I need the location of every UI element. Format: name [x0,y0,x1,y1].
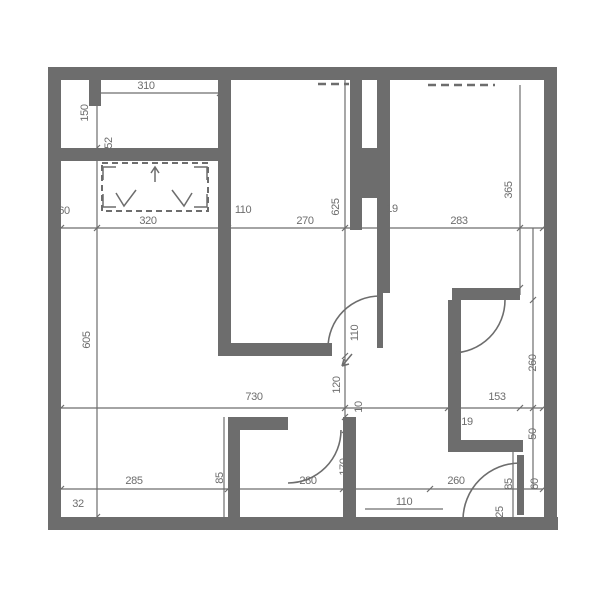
dimension-label: 110 [349,325,361,342]
dimension-label: 110 [235,204,252,216]
wall [228,417,240,517]
wall [61,148,220,161]
plan-symbol-line [194,194,207,207]
dimension-label: 280 [299,475,316,487]
wall [218,80,231,356]
wall [362,148,380,198]
dimension-label: 110 [396,496,413,508]
wall [48,517,558,530]
wall [48,67,557,80]
door-swing-arc [463,463,520,520]
dimension-label: 19 [461,416,473,428]
dimension-label: 730 [245,391,262,403]
dimension-label: 605 [81,331,93,348]
plan-symbol-line [342,354,352,366]
dimension-label: 19 [386,203,398,215]
wall [544,67,557,530]
dimension-label: 25 [494,506,506,518]
wall [448,300,461,452]
dimension-label: 50 [527,428,539,440]
dimension-label: 50 [342,500,354,512]
floor-plan-canvas: 3101505260320110270625192833656051101207… [0,0,600,600]
wall [377,293,383,348]
dimension-label: 260 [527,354,539,371]
plan-symbol-line [116,190,136,206]
wall [48,67,61,530]
floor-plan: 3101505260320110270625192833656051101207… [0,0,600,600]
dimension-label: 52 [103,137,115,149]
wall [225,343,332,356]
dimension-label: 283 [450,215,467,227]
wall [517,455,524,515]
wall [350,80,362,230]
dimension-label: 260 [447,475,464,487]
dimension-label: 150 [79,104,91,121]
dimension-label: 85 [214,472,226,484]
dimension-label: 365 [503,181,515,198]
wall [452,288,520,300]
dimension-label: 320 [139,215,156,227]
wall [448,440,523,452]
dimension-label: 120 [331,376,343,393]
dimension-label: 270 [296,215,313,227]
dimension-label: 60 [58,205,70,217]
plan-symbol-line [103,167,116,180]
plan-symbol-line [151,167,159,182]
dimension-label: 85 [503,478,515,490]
plan-symbol-line [172,190,192,206]
wall [89,78,101,106]
dimension-label: 625 [330,198,342,215]
plan-symbol-line [103,194,116,207]
dimension-label: 10 [353,401,365,413]
wall [240,417,288,430]
dimension-label: 170 [338,458,350,475]
dimension-label: 32 [72,498,84,510]
dimension-label: 310 [137,80,154,92]
plan-symbol-line [194,167,207,180]
dimension-label: 285 [125,475,142,487]
dimension-label: 153 [488,391,505,403]
dimension-label: 60 [529,478,541,490]
